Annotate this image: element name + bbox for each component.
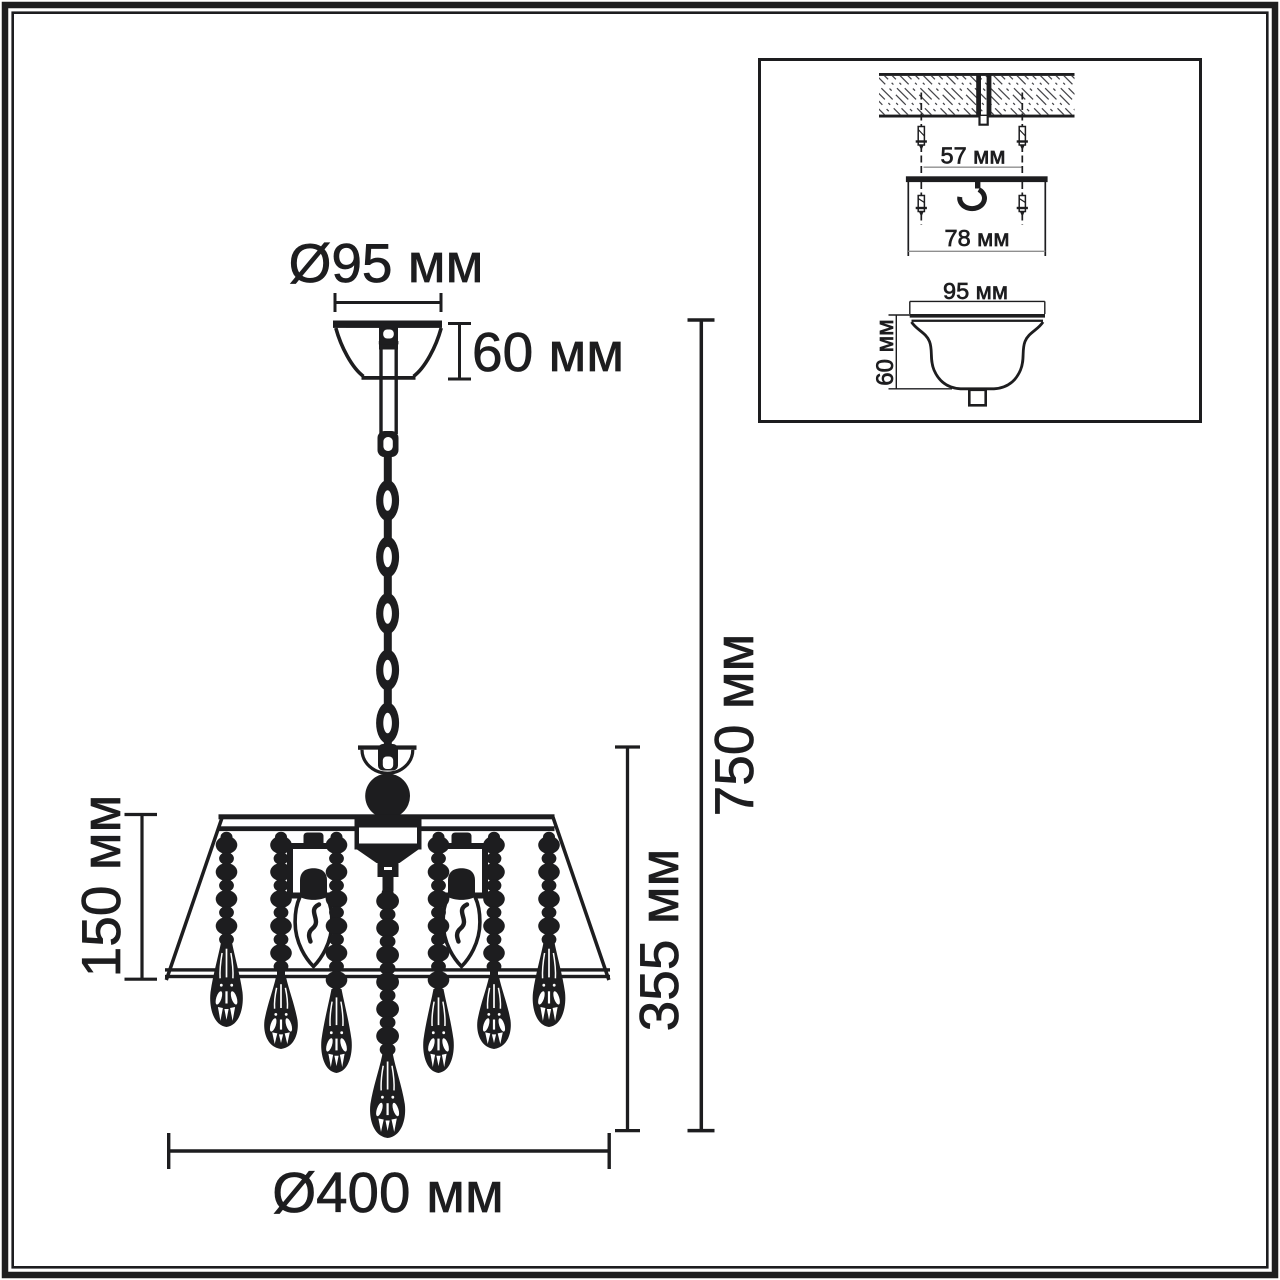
svg-text:95 мм: 95 мм — [943, 278, 1008, 304]
svg-text:Ø400 мм: Ø400 мм — [272, 1161, 504, 1224]
svg-text:Ø95 мм: Ø95 мм — [289, 232, 484, 294]
svg-text:78 мм: 78 мм — [945, 225, 1010, 251]
svg-text:60 мм: 60 мм — [872, 319, 899, 385]
svg-text:57 мм: 57 мм — [941, 143, 1006, 169]
svg-text:750 мм: 750 мм — [703, 634, 765, 817]
svg-text:60 мм: 60 мм — [472, 321, 624, 383]
svg-text:355 мм: 355 мм — [628, 849, 690, 1032]
svg-text:150 мм: 150 мм — [70, 795, 132, 978]
